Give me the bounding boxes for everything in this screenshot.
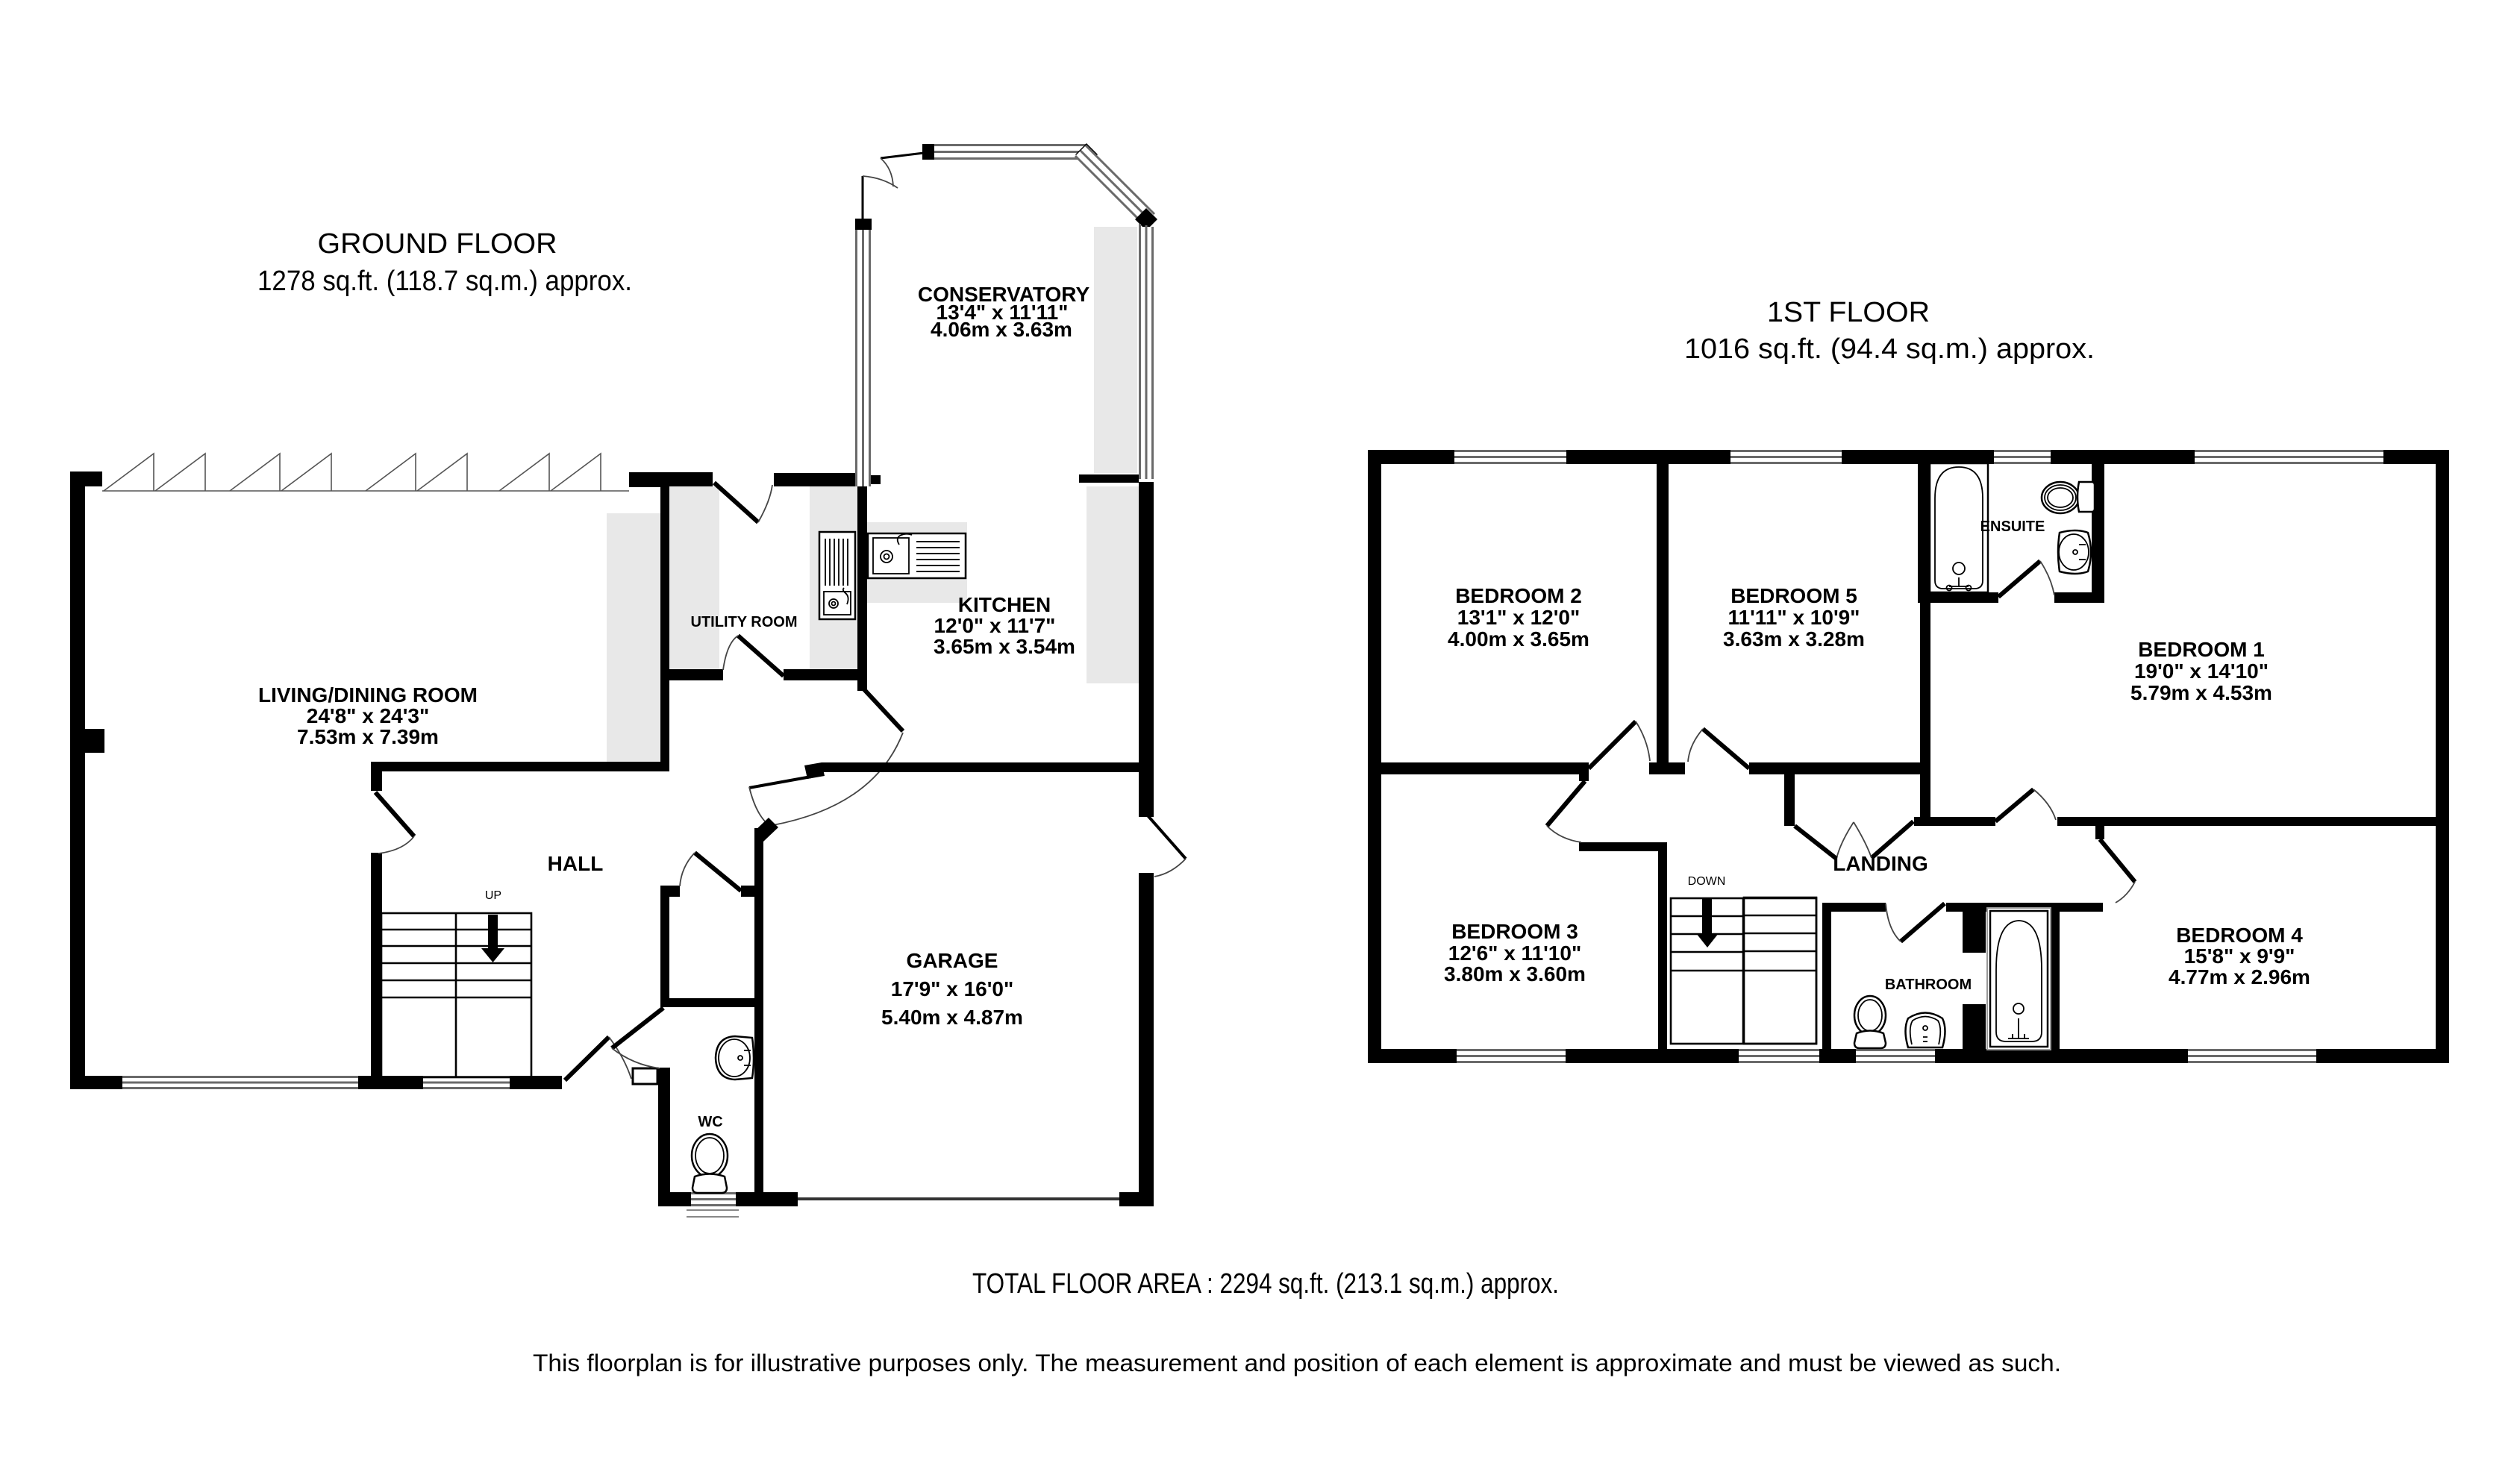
svg-text:5.79m x 4.53m: 5.79m x 4.53m	[2130, 681, 2272, 704]
svg-text:GROUND FLOOR: GROUND FLOOR	[318, 228, 557, 260]
svg-text:7.53m x 7.39m: 7.53m x 7.39m	[297, 725, 439, 748]
svg-text:BEDROOM 2: BEDROOM 2	[1455, 584, 1582, 607]
svg-text:UP: UP	[485, 889, 501, 902]
svg-text:WC: WC	[698, 1114, 722, 1130]
svg-text:HALL: HALL	[548, 852, 604, 875]
svg-text:1ST FLOOR: 1ST FLOOR	[1767, 297, 1930, 328]
svg-text:ENSUITE: ENSUITE	[1980, 519, 2045, 535]
svg-text:BEDROOM 1: BEDROOM 1	[2138, 638, 2265, 661]
svg-text:5.40m x 4.87m: 5.40m x 4.87m	[881, 1006, 1023, 1029]
svg-text:3.80m x 3.60m: 3.80m x 3.60m	[1444, 962, 1586, 986]
svg-text:BEDROOM 5: BEDROOM 5	[1730, 584, 1857, 607]
svg-text:LIVING/DINING ROOM: LIVING/DINING ROOM	[258, 683, 478, 707]
svg-text:3.65m x 3.54m: 3.65m x 3.54m	[934, 635, 1075, 658]
svg-text:GARAGE: GARAGE	[907, 949, 998, 972]
svg-text:17'9" x 16'0": 17'9" x 16'0"	[891, 977, 1013, 1000]
svg-text:TOTAL FLOOR AREA : 2294 sq.ft.: TOTAL FLOOR AREA : 2294 sq.ft. (213.1 sq…	[972, 1268, 1559, 1300]
svg-text:24'8" x 24'3": 24'8" x 24'3"	[307, 704, 429, 727]
svg-text:UTILITY ROOM: UTILITY ROOM	[691, 614, 798, 630]
svg-text:BATHROOM: BATHROOM	[1885, 977, 1972, 993]
svg-text:12'0" x 11'7": 12'0" x 11'7"	[934, 614, 1056, 637]
svg-text:KITCHEN: KITCHEN	[958, 593, 1051, 616]
svg-text:4.00m x 3.65m: 4.00m x 3.65m	[1448, 627, 1589, 651]
svg-text:This floorplan is for illustra: This floorplan is for illustrative purpo…	[533, 1350, 2061, 1376]
svg-text:13'1" x 12'0": 13'1" x 12'0"	[1457, 606, 1580, 629]
svg-text:DOWN: DOWN	[1688, 875, 1726, 888]
svg-text:3.63m x 3.28m: 3.63m x 3.28m	[1723, 627, 1865, 651]
svg-text:11'11" x 10'9": 11'11" x 10'9"	[1728, 606, 1860, 629]
svg-text:1016 sq.ft. (94.4 sq.m.) appro: 1016 sq.ft. (94.4 sq.m.) approx.	[1684, 333, 2095, 365]
svg-text:BEDROOM 3: BEDROOM 3	[1451, 920, 1578, 943]
svg-text:4.06m x 3.63m: 4.06m x 3.63m	[931, 318, 1072, 341]
svg-text:4.77m x 2.96m: 4.77m x 2.96m	[2169, 965, 2310, 989]
svg-text:LANDING: LANDING	[1833, 852, 1928, 875]
svg-text:12'6" x 11'10": 12'6" x 11'10"	[1448, 942, 1581, 965]
svg-text:15'8" x 9'9": 15'8" x 9'9"	[2184, 944, 2295, 968]
svg-text:19'0" x 14'10": 19'0" x 14'10"	[2134, 660, 2269, 683]
svg-text:1278 sq.ft. (118.7 sq.m.) appr: 1278 sq.ft. (118.7 sq.m.) approx.	[257, 266, 632, 297]
svg-text:BEDROOM 4: BEDROOM 4	[2176, 924, 2303, 947]
